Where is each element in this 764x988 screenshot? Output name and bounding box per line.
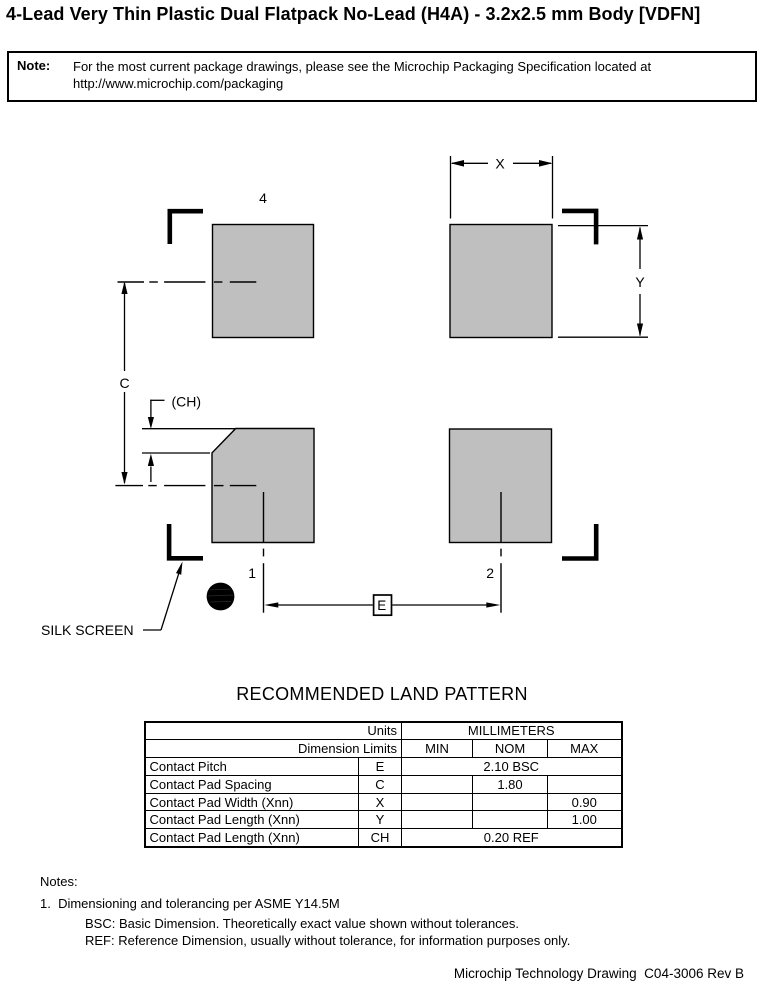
- svg-text:Y: Y: [635, 274, 645, 290]
- svg-text:C: C: [119, 375, 129, 391]
- svg-text:2: 2: [486, 565, 494, 581]
- svg-text:(CH): (CH): [172, 393, 202, 409]
- svg-text:X: X: [495, 155, 505, 171]
- svg-text:E: E: [377, 598, 386, 613]
- svg-text:4: 4: [259, 190, 267, 206]
- svg-text:1: 1: [248, 565, 256, 581]
